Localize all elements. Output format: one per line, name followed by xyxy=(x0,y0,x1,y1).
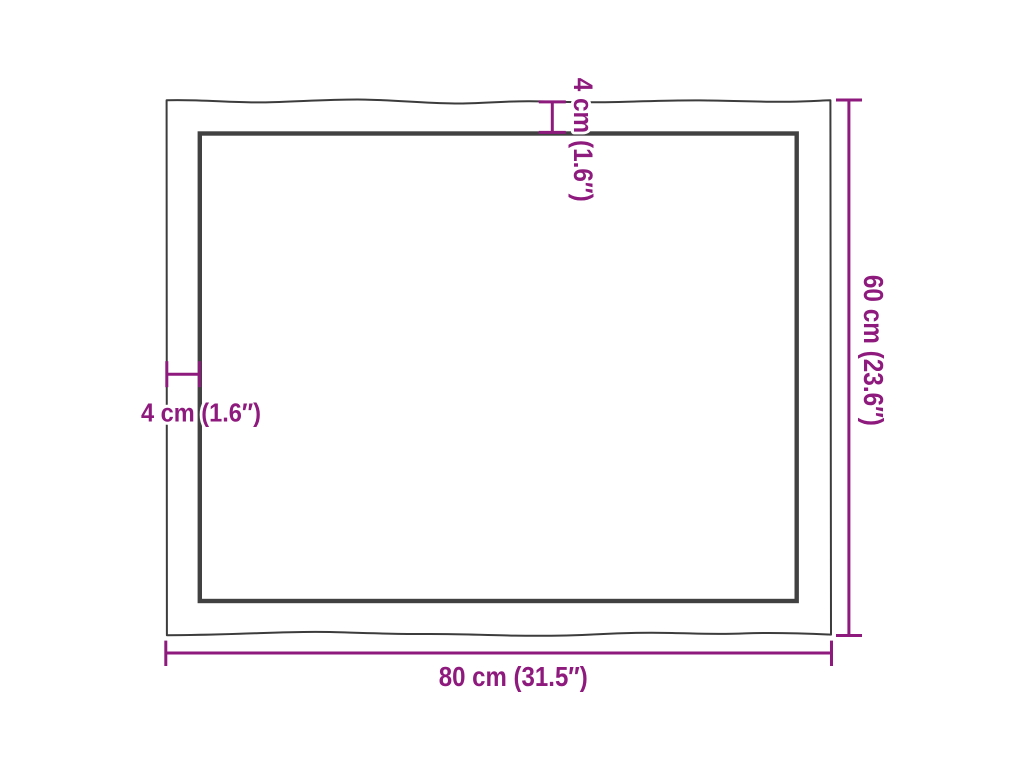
svg-text:4 cm (1.6″): 4 cm (1.6″) xyxy=(568,78,598,202)
svg-text:4 cm (1.6″): 4 cm (1.6″) xyxy=(141,398,261,428)
svg-text:80 cm (31.5″): 80 cm (31.5″) xyxy=(439,661,588,692)
svg-text:60 cm (23.6″): 60 cm (23.6″) xyxy=(858,275,889,426)
